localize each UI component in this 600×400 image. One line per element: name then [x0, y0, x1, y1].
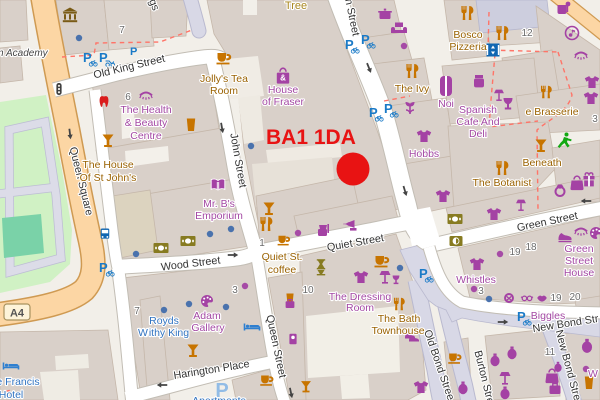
- svg-text:Gallery: Gallery: [191, 322, 225, 334]
- svg-text:Emporium: Emporium: [195, 210, 243, 222]
- svg-text:20: 20: [569, 292, 581, 303]
- svg-text:e Brasserie: e Brasserie: [525, 106, 578, 118]
- svg-text:Mr. B's: Mr. B's: [203, 198, 235, 210]
- svg-text:Room: Room: [210, 85, 238, 97]
- svg-text:A4: A4: [10, 308, 25, 320]
- svg-text:Adam: Adam: [193, 310, 221, 322]
- svg-text:12: 12: [521, 28, 533, 39]
- svg-text:Spanish: Spanish: [459, 104, 497, 116]
- svg-text:Of St John's: Of St John's: [80, 172, 137, 184]
- svg-text:Centre: Centre: [130, 130, 162, 142]
- svg-text:Tree: Tree: [285, 0, 307, 12]
- svg-text:The Health: The Health: [120, 104, 172, 116]
- svg-text:Room: Room: [346, 302, 374, 314]
- svg-text:Bosco: Bosco: [453, 29, 482, 41]
- svg-text:W: W: [588, 368, 598, 380]
- svg-text:The Bath: The Bath: [378, 313, 421, 325]
- svg-text:Jolly's Tea: Jolly's Tea: [200, 73, 248, 85]
- svg-text:6: 6: [125, 92, 131, 103]
- svg-text:The Ivy: The Ivy: [395, 83, 430, 95]
- svg-text:P: P: [130, 46, 137, 58]
- svg-text:Hobbs: Hobbs: [409, 148, 439, 160]
- svg-text:Green: Green: [564, 243, 593, 255]
- svg-text:The Botanist: The Botanist: [473, 177, 532, 189]
- svg-text:BA1 1DA: BA1 1DA: [266, 126, 356, 149]
- svg-text:3: 3: [232, 285, 238, 296]
- svg-text:W: W: [138, 327, 148, 339]
- svg-text:The House: The House: [82, 159, 134, 171]
- svg-text:Beneath: Beneath: [522, 157, 561, 169]
- svg-text:House: House: [564, 267, 595, 279]
- svg-text:3: 3: [478, 286, 484, 297]
- svg-text:Deli: Deli: [469, 128, 487, 140]
- svg-text:n Academy: n Academy: [0, 48, 49, 59]
- svg-text:1: 1: [259, 238, 265, 249]
- svg-text:7: 7: [134, 306, 140, 317]
- svg-text:Apartments: Apartments: [192, 395, 246, 400]
- svg-text:19: 19: [550, 293, 562, 304]
- svg-text:Royds: Royds: [149, 315, 179, 327]
- svg-text:Noi: Noi: [438, 98, 454, 110]
- svg-text:Quiet St.: Quiet St.: [262, 251, 303, 263]
- svg-text:7: 7: [119, 25, 125, 36]
- svg-text:18: 18: [525, 242, 537, 253]
- svg-text:Hotel: Hotel: [0, 389, 23, 400]
- svg-text:10: 10: [302, 285, 314, 296]
- svg-text:Townhouse: Townhouse: [371, 325, 424, 337]
- svg-text:Pizzeria: Pizzeria: [449, 41, 487, 53]
- svg-text:11: 11: [545, 347, 556, 358]
- svg-text:e Francis: e Francis: [0, 376, 40, 388]
- svg-text:& Beauty: & Beauty: [125, 117, 168, 129]
- svg-text:19: 19: [509, 247, 521, 258]
- svg-text:coffee: coffee: [268, 264, 297, 276]
- svg-text:House: House: [268, 84, 299, 96]
- svg-text:Cafe And: Cafe And: [456, 116, 499, 128]
- svg-text:Biggles: Biggles: [531, 310, 565, 322]
- svg-text:3: 3: [592, 114, 598, 125]
- svg-text:Street: Street: [565, 255, 593, 267]
- svg-text:of Fraser: of Fraser: [262, 96, 305, 108]
- svg-text:Whistles: Whistles: [456, 274, 496, 286]
